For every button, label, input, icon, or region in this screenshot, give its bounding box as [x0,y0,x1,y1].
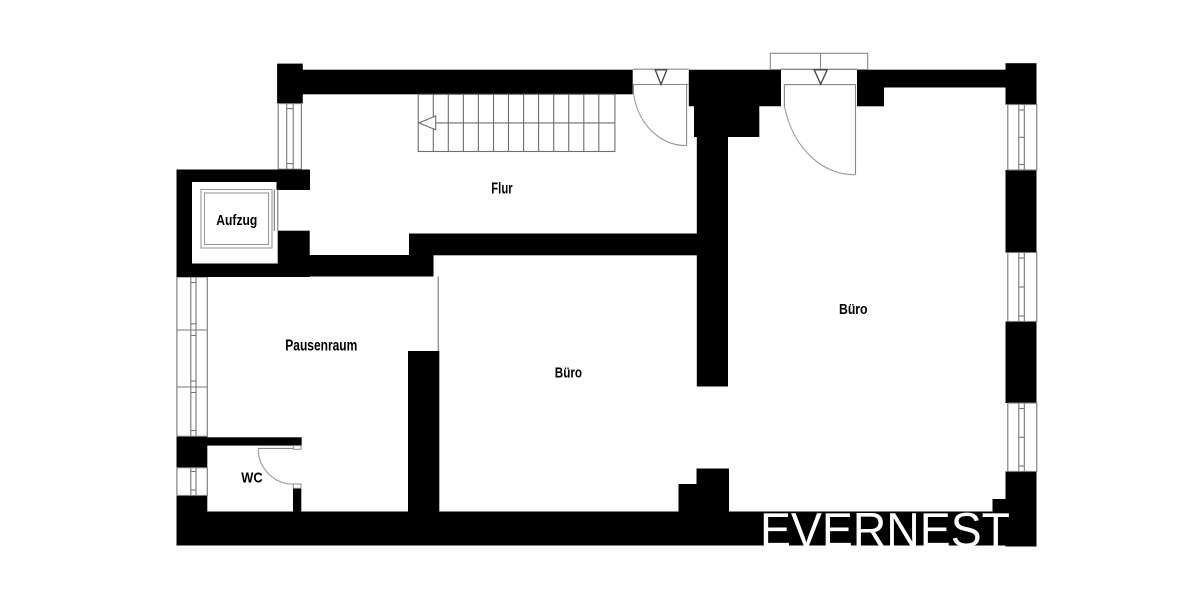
svg-text:Büro: Büro [555,365,582,382]
svg-text:Büro: Büro [839,301,868,318]
svg-text:Pausenraum: Pausenraum [285,338,357,355]
svg-text:Aufzug: Aufzug [216,213,257,229]
svg-text:WC: WC [241,471,263,487]
svg-text:EVERNEST: EVERNEST [760,505,1010,558]
svg-text:Flur: Flur [491,181,512,198]
